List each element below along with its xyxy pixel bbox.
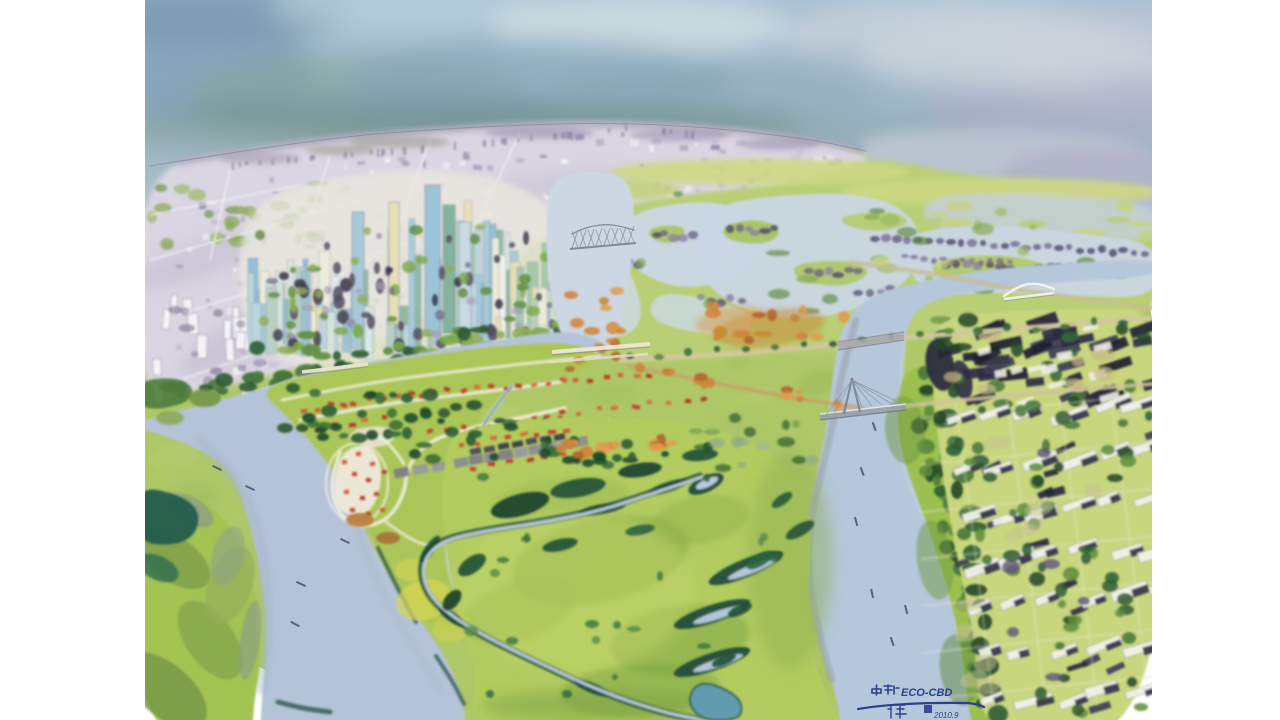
svg-text:ECO-CBD: ECO-CBD — [901, 687, 952, 699]
svg-text:2010.9: 2010.9 — [933, 711, 959, 720]
